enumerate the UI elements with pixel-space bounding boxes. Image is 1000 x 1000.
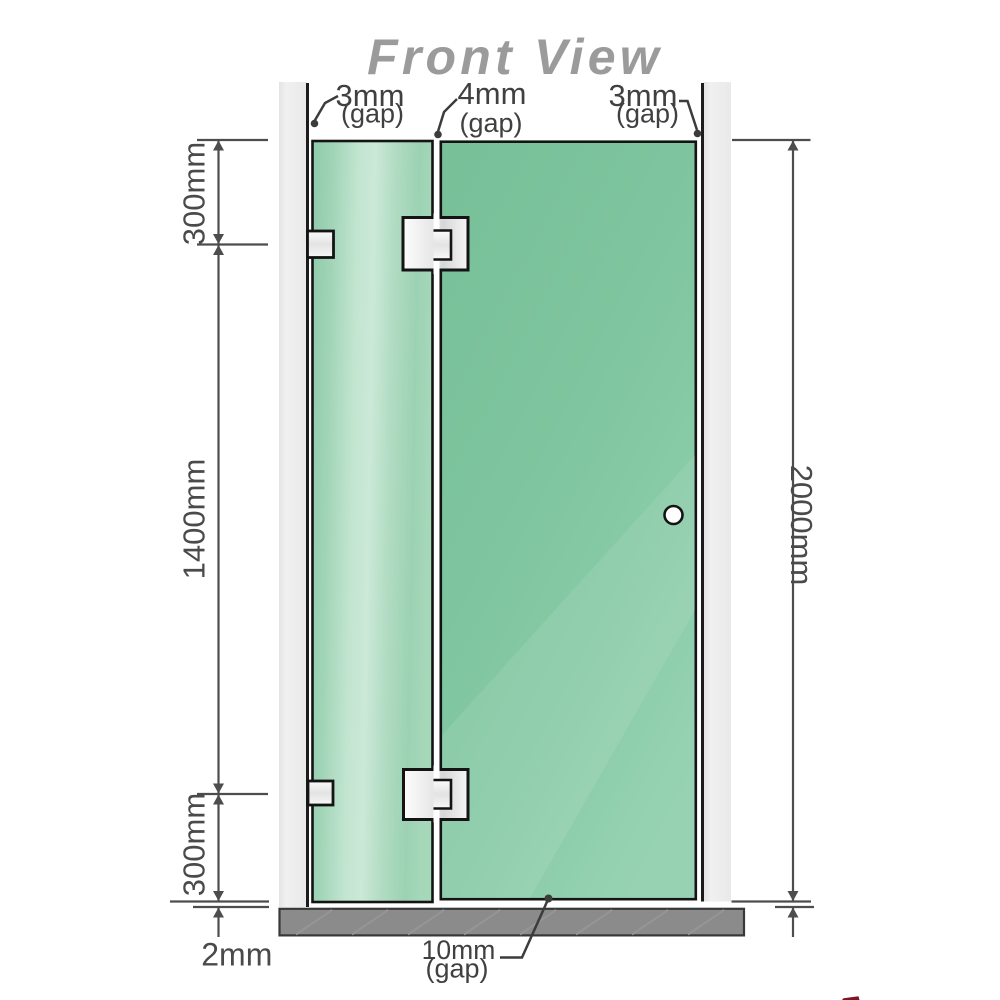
svg-text:2000mm: 2000mm <box>784 465 819 586</box>
svg-text:(gap): (gap) <box>459 108 522 138</box>
svg-text:2mm: 2mm <box>201 937 272 973</box>
svg-text:300mm: 300mm <box>177 142 212 245</box>
svg-text:300mm: 300mm <box>177 793 212 896</box>
svg-text:1400mm: 1400mm <box>177 459 212 580</box>
svg-text:(gap): (gap) <box>616 99 679 129</box>
svg-text:(gap): (gap) <box>425 954 488 984</box>
svg-text:4mm: 4mm <box>458 76 527 111</box>
svg-text:(gap): (gap) <box>341 99 404 129</box>
